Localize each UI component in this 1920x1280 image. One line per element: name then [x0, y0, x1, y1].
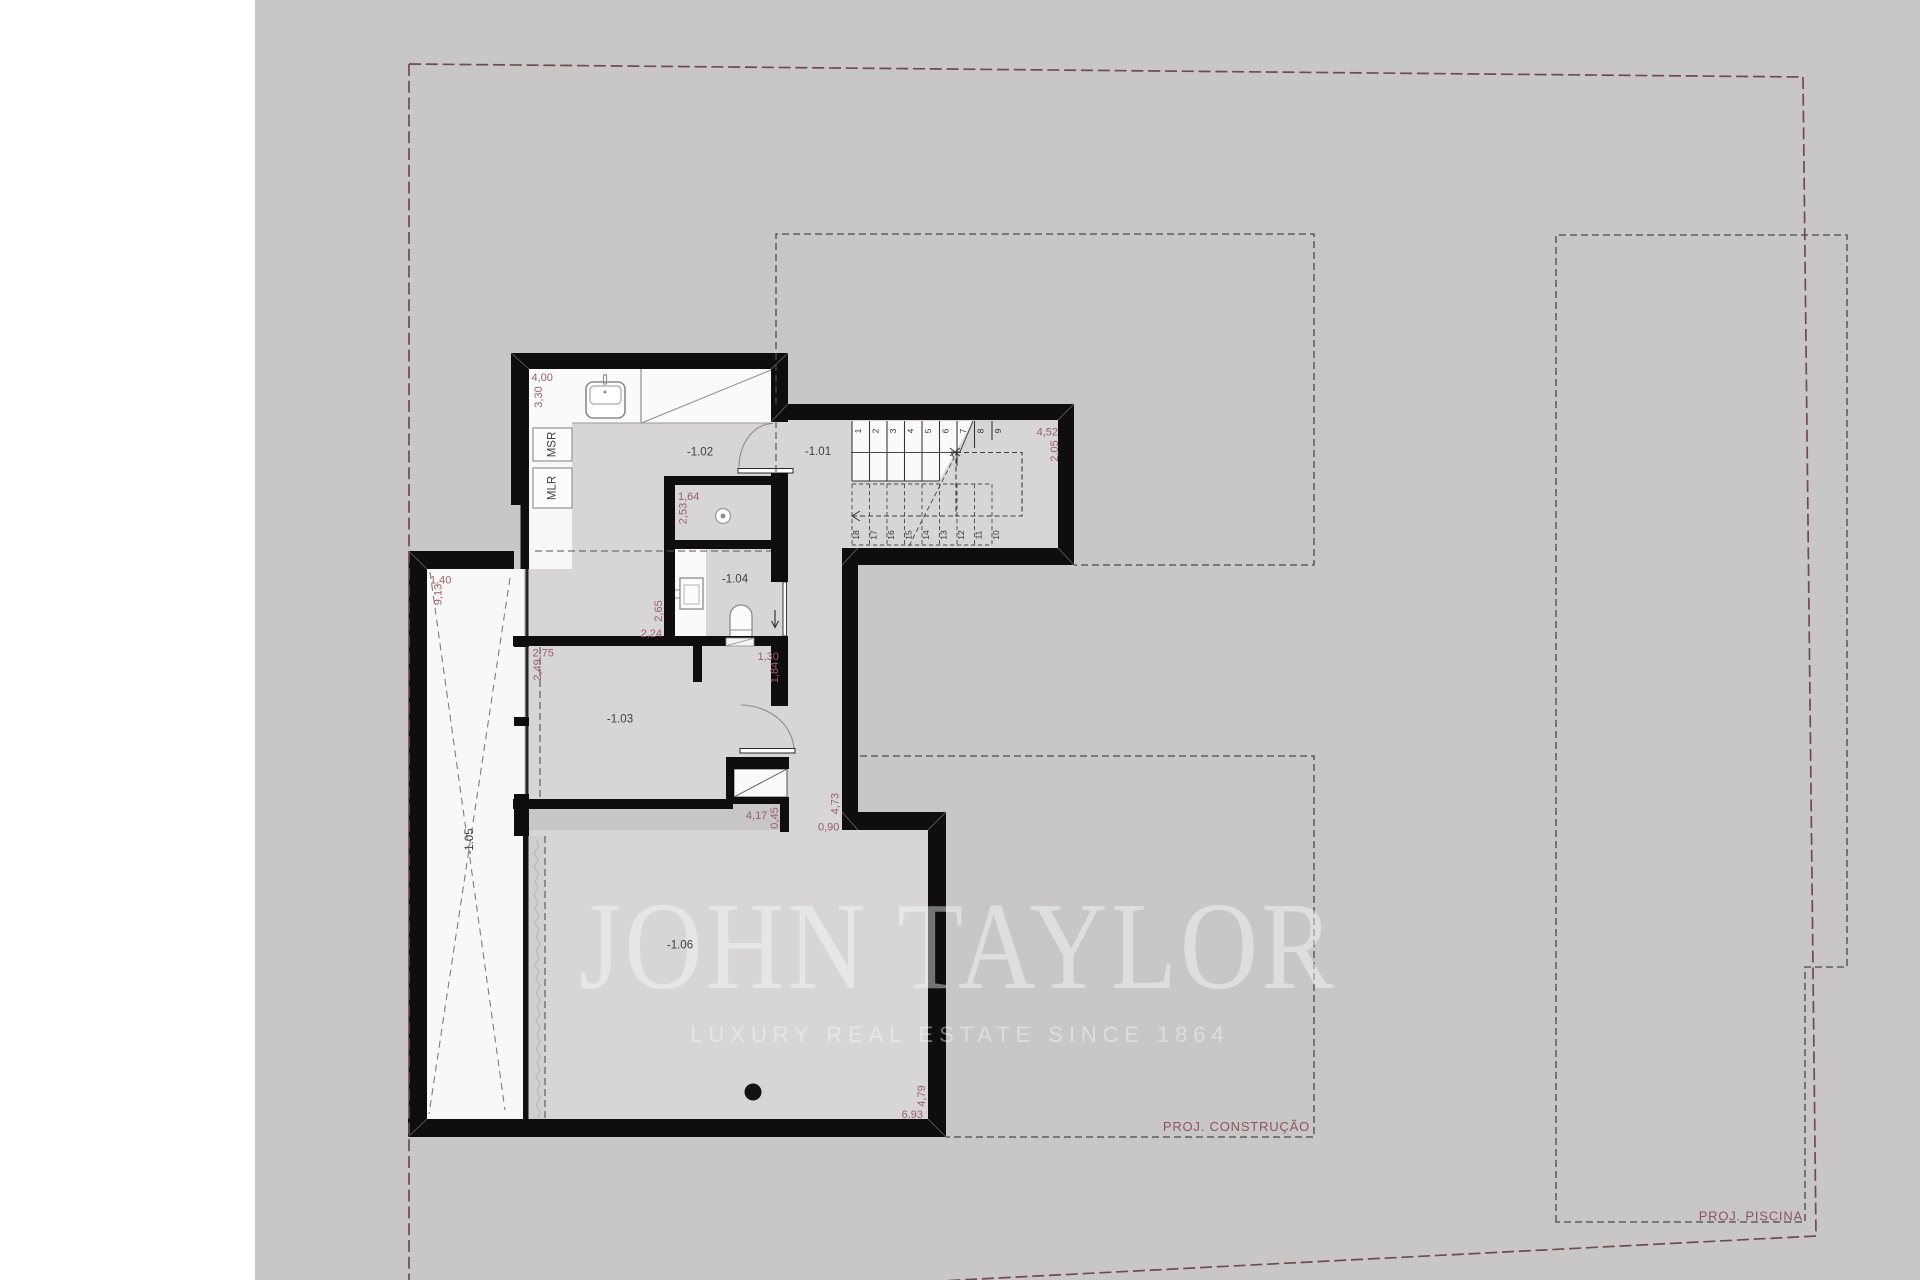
svg-text:-1.01: -1.01 — [805, 446, 831, 458]
svg-text:MSR: MSR — [547, 432, 559, 458]
svg-text:2,65: 2,65 — [653, 600, 665, 621]
svg-text:0,45: 0,45 — [769, 807, 781, 828]
svg-text:8: 8 — [976, 428, 986, 433]
svg-text:-1.05: -1.05 — [464, 828, 476, 854]
svg-text:LUXURY REAL ESTATE SINCE 1864: LUXURY REAL ESTATE SINCE 1864 — [690, 1022, 1229, 1047]
svg-text:2,05: 2,05 — [1049, 440, 1061, 461]
svg-text:-1.03: -1.03 — [607, 714, 633, 726]
svg-text:0,90: 0,90 — [818, 822, 839, 834]
svg-text:1: 1 — [853, 428, 863, 433]
svg-text:2,53: 2,53 — [678, 503, 690, 524]
svg-text:MLR: MLR — [547, 476, 559, 500]
svg-text:16: 16 — [886, 530, 896, 540]
svg-text:4,17: 4,17 — [746, 810, 767, 822]
svg-text:9: 9 — [993, 428, 1003, 433]
svg-text:14: 14 — [921, 530, 931, 540]
svg-text:9,13: 9,13 — [433, 584, 445, 605]
svg-text:2,49: 2,49 — [532, 659, 544, 680]
svg-text:-1.04: -1.04 — [722, 574, 749, 586]
svg-text:4: 4 — [906, 428, 916, 433]
svg-text:6,93: 6,93 — [902, 1109, 923, 1121]
svg-text:12: 12 — [956, 530, 966, 540]
svg-text:1,30: 1,30 — [758, 651, 779, 663]
svg-text:17: 17 — [869, 530, 879, 540]
svg-text:1,64: 1,64 — [678, 491, 699, 503]
svg-text:18: 18 — [851, 530, 861, 540]
svg-text:2,24: 2,24 — [641, 628, 662, 640]
svg-text:11: 11 — [974, 530, 984, 539]
svg-text:6: 6 — [941, 428, 951, 433]
svg-text:4,79: 4,79 — [916, 1085, 928, 1106]
svg-text:PROJ. PISCINA: PROJ. PISCINA — [1699, 1209, 1803, 1224]
svg-text:15: 15 — [904, 530, 914, 540]
svg-text:-1.02: -1.02 — [687, 447, 713, 459]
svg-text:1,84: 1,84 — [769, 662, 781, 683]
svg-text:3,30: 3,30 — [533, 386, 545, 407]
svg-text:10: 10 — [991, 530, 1001, 540]
svg-text:2,75: 2,75 — [533, 648, 554, 660]
svg-text:7: 7 — [958, 428, 968, 433]
svg-text:PROJ. CONSTRUÇÃO: PROJ. CONSTRUÇÃO — [1163, 1119, 1310, 1134]
svg-text:3: 3 — [888, 428, 898, 433]
svg-text:4,00: 4,00 — [532, 372, 553, 384]
svg-text:-1.06: -1.06 — [667, 940, 693, 952]
svg-text:2: 2 — [871, 428, 881, 433]
svg-text:4,52: 4,52 — [1037, 427, 1058, 439]
svg-text:4,73: 4,73 — [830, 793, 842, 814]
svg-text:5: 5 — [923, 428, 933, 433]
svg-text:13: 13 — [939, 530, 949, 540]
